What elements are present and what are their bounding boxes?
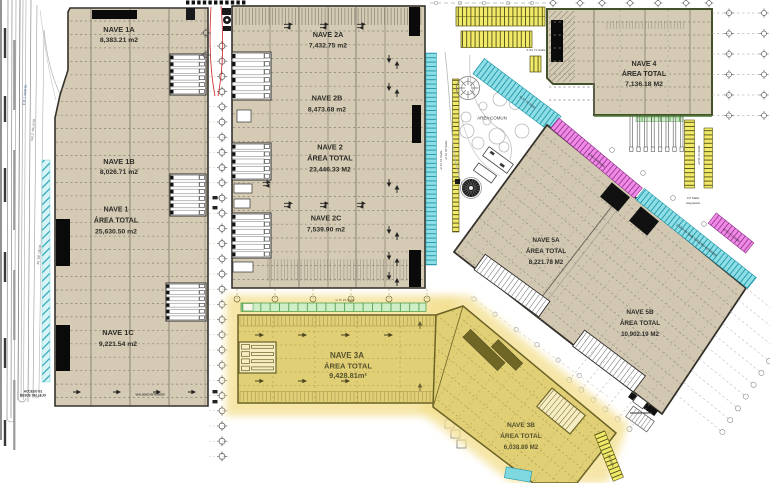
svg-text:NAVE 4: NAVE 4 [632,61,657,68]
svg-text:ÁREA TOTAL: ÁREA TOTAL [622,69,667,78]
svg-text:NAVE 2B: NAVE 2B [312,94,343,103]
svg-text:ÁREA TOTAL: ÁREA TOTAL [526,246,566,255]
svg-text:6 N2 71 Stalls: 6 N2 71 Stalls [527,48,546,52]
svg-text:ÁREA TOTAL: ÁREA TOTAL [500,431,542,440]
svg-text:8,026.71 m2: 8,026.71 m2 [100,169,138,176]
svg-text:lo N° 22 Stalls: lo N° 22 Stalls [336,298,355,302]
svg-text:NAVE 1A: NAVE 1A [103,25,135,34]
svg-text:NAVE 5A: NAVE 5A [532,237,560,244]
svg-text:el 62 48 Stalls: el 62 48 Stalls [444,140,448,159]
svg-text:Asignados: Asignados [686,201,701,205]
svg-text:9,428.81m²: 9,428.81m² [329,371,367,380]
svg-text:6,038.89 M2: 6,038.89 M2 [504,444,539,451]
svg-text:23,446.33 M2: 23,446.33 M2 [309,167,351,174]
svg-text:0 5 Stalls: 0 5 Stalls [687,196,700,200]
svg-text:NAVE 5B: NAVE 5B [626,309,654,316]
svg-text:ÁREA TOTAL: ÁREA TOTAL [307,154,353,163]
svg-text:8,473.68 m2: 8,473.68 m2 [308,107,346,114]
svg-text:NAVE 2: NAVE 2 [317,143,342,152]
svg-text:DESDE VALLEJO: DESDE VALLEJO [20,394,47,398]
svg-text:NAVE 2C: NAVE 2C [311,214,342,223]
svg-text:25,630.50 m2: 25,630.50 m2 [95,229,137,236]
svg-text:el 61 42 Stalls: el 61 42 Stalls [439,150,443,169]
svg-text:NAVE 1C: NAVE 1C [102,328,134,337]
svg-text:el N4 33 Stalls: el N4 33 Stalls [697,145,701,165]
svg-text:NAVE 2A: NAVE 2A [313,30,344,39]
svg-text:8,383.21 m2: 8,383.21 m2 [100,37,138,44]
svg-text:7,136.18 M2: 7,136.18 M2 [625,81,663,88]
svg-text:AREA COMUN: AREA COMUN [477,116,507,121]
svg-text:VIALIDAD INTERIOR: VIALIDAD INTERIOR [135,393,165,397]
svg-text:ÁREA TOTAL: ÁREA TOTAL [620,318,660,327]
svg-text:ÁREA TOTAL: ÁREA TOTAL [324,362,372,371]
svg-text:7,432.75 m2: 7,432.75 m2 [309,43,347,50]
svg-text:8,221.78 M2: 8,221.78 M2 [529,259,564,266]
svg-text:9,221.54 m2: 9,221.54 m2 [99,341,137,348]
svg-text:NAVE 1: NAVE 1 [104,207,129,214]
svg-text:10,902.19 M2: 10,902.19 M2 [621,331,659,338]
svg-text:NAVE 1B: NAVE 1B [103,157,135,166]
svg-text:NAVE 3B: NAVE 3B [507,422,535,429]
svg-text:7,539.90 m2: 7,539.90 m2 [307,227,345,234]
svg-text:ÁREA TOTAL: ÁREA TOTAL [94,216,139,225]
svg-text:NAVE 3A: NAVE 3A [330,351,364,360]
